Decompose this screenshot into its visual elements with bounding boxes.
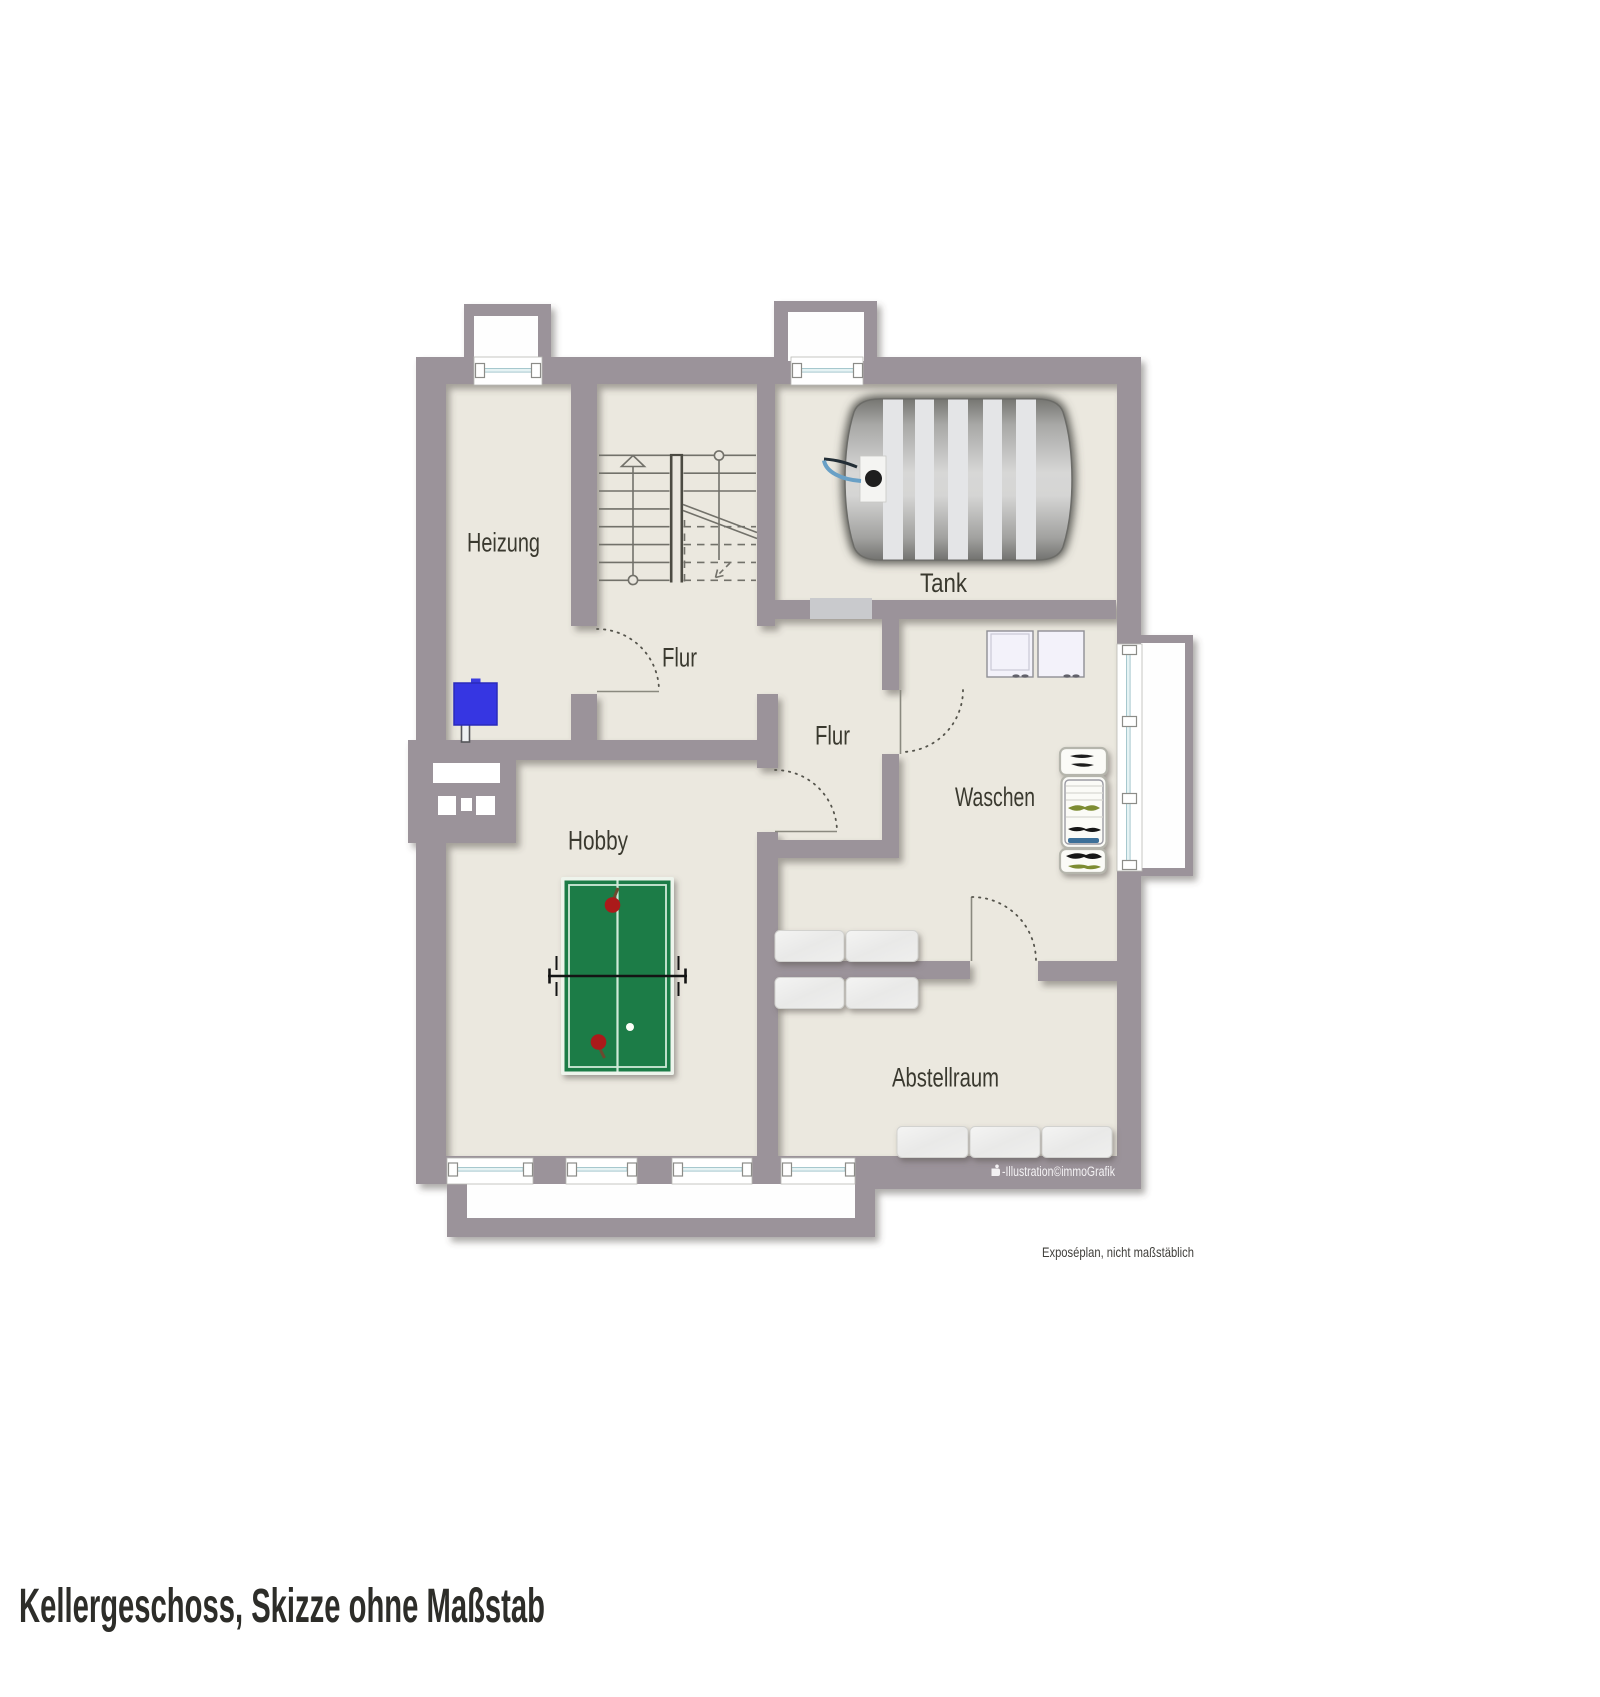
svg-text:Hobby: Hobby (568, 826, 629, 856)
svg-text:Flur: Flur (662, 643, 697, 673)
svg-text:-Illustration©immoGrafik: -Illustration©immoGrafik (1002, 1164, 1115, 1179)
svg-text:Exposéplan, nicht maßstäblich: Exposéplan, nicht maßstäblich (1042, 1244, 1194, 1260)
svg-text:Flur: Flur (815, 721, 850, 751)
svg-text:Abstellraum: Abstellraum (892, 1063, 999, 1093)
svg-text:Waschen: Waschen (955, 782, 1035, 812)
svg-text:Tank: Tank (920, 568, 967, 598)
svg-text:Kellergeschoss, Skizze ohne Ma: Kellergeschoss, Skizze ohne Maßstab (19, 1580, 545, 1633)
svg-text:Heizung: Heizung (467, 528, 540, 558)
